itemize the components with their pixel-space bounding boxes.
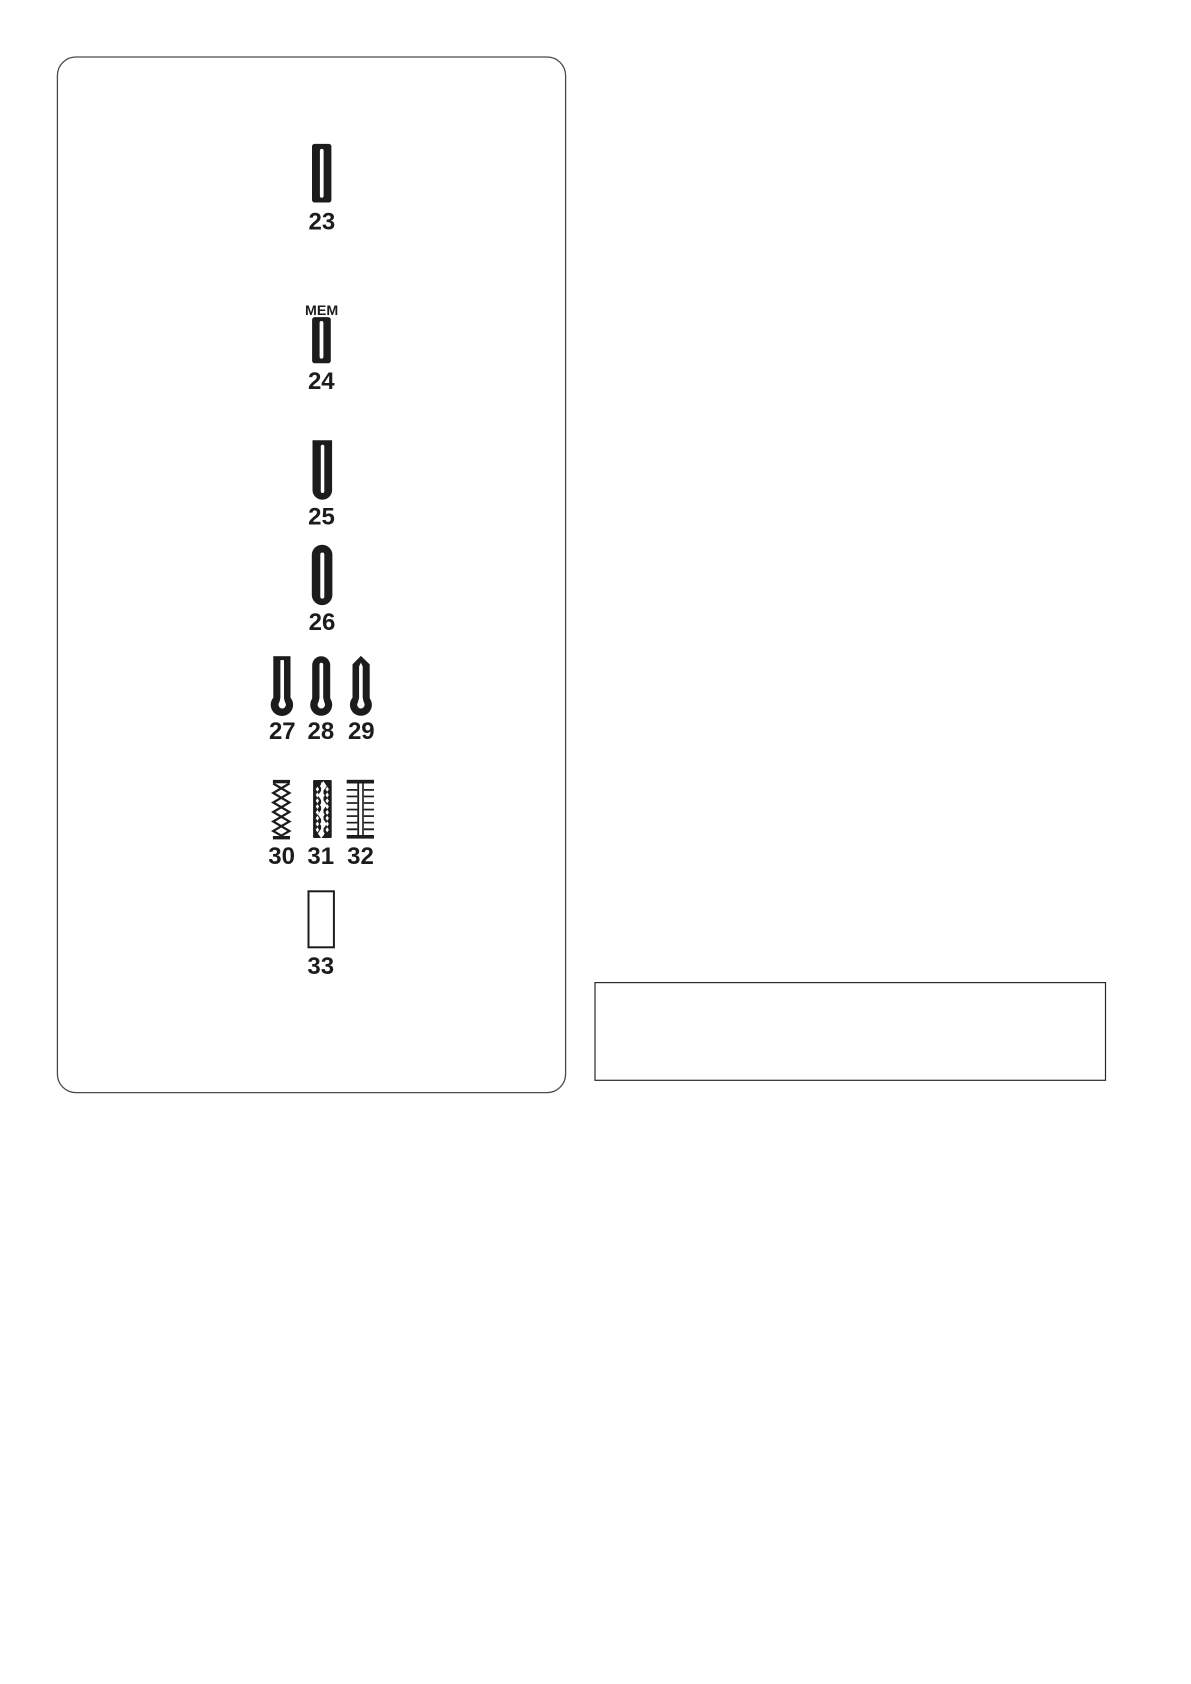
svg-text:28: 28 bbox=[308, 718, 335, 745]
svg-text:32: 32 bbox=[347, 843, 374, 870]
svg-text:30: 30 bbox=[268, 843, 295, 870]
svg-text:33: 33 bbox=[307, 953, 334, 980]
svg-text:26: 26 bbox=[309, 609, 336, 636]
svg-text:31: 31 bbox=[307, 843, 334, 870]
svg-text:27: 27 bbox=[269, 718, 296, 745]
svg-text:25: 25 bbox=[308, 503, 335, 530]
svg-text:MEM: MEM bbox=[305, 303, 338, 319]
svg-text:23: 23 bbox=[309, 209, 336, 236]
svg-text:24: 24 bbox=[308, 368, 335, 395]
svg-text:29: 29 bbox=[348, 718, 375, 745]
